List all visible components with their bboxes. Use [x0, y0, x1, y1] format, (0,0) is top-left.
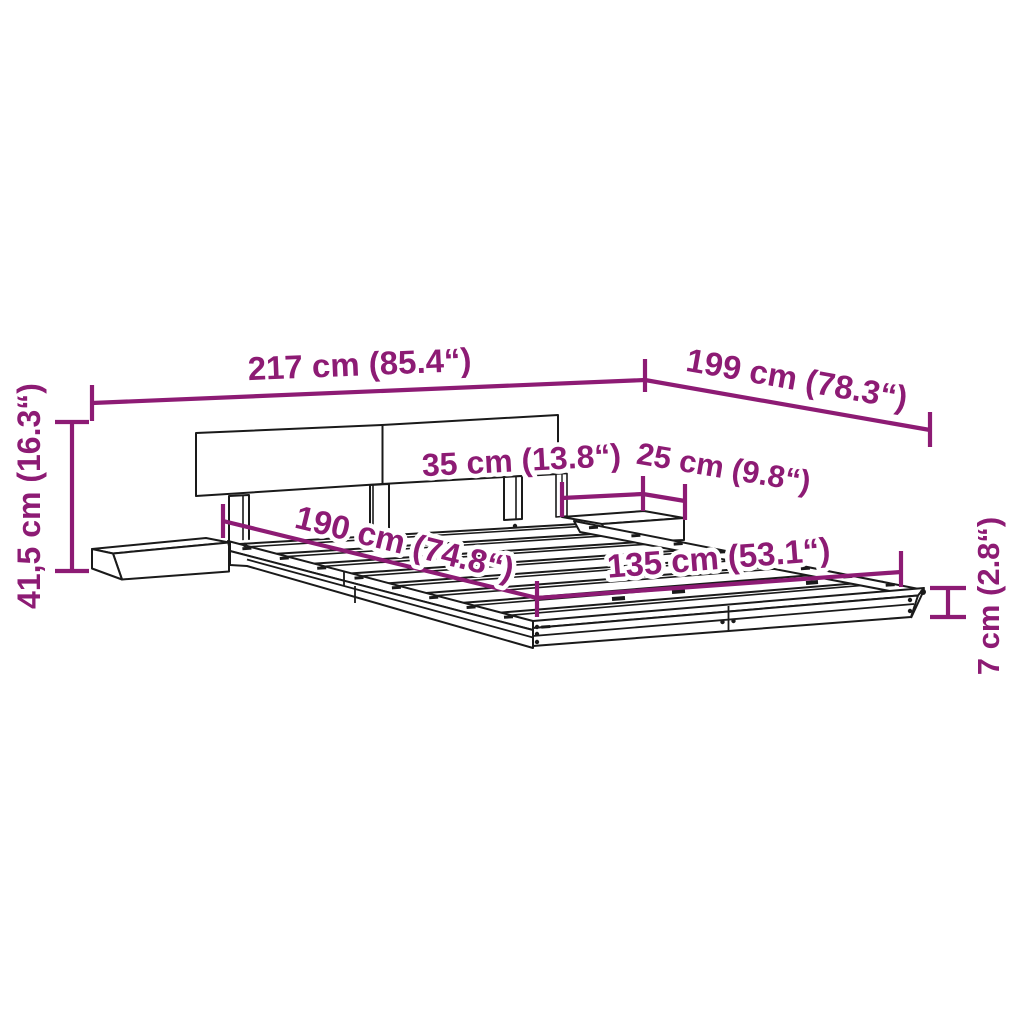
svg-text:41,5 cm (16.3“): 41,5 cm (16.3“) [11, 383, 47, 609]
svg-text:7 cm (2.8“): 7 cm (2.8“) [971, 517, 1006, 676]
